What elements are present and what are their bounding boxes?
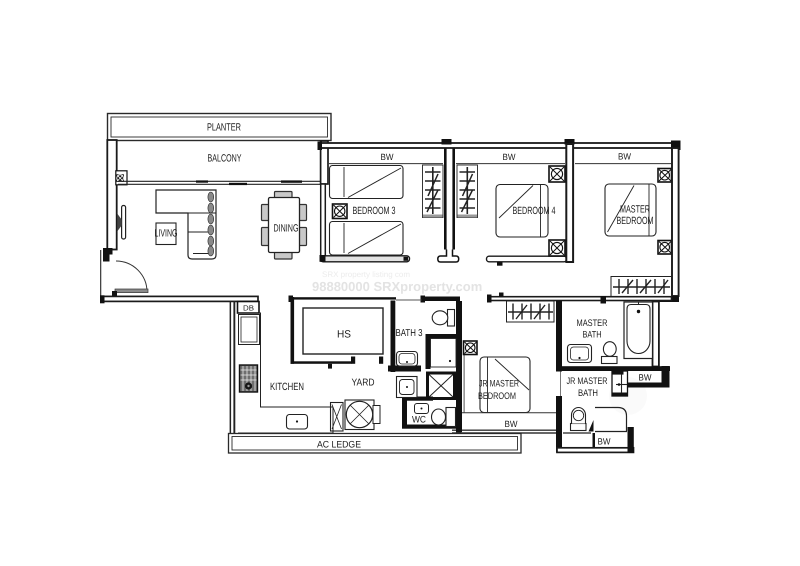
svg-text:BALCONY: BALCONY xyxy=(208,153,242,165)
svg-text:AC LEDGE: AC LEDGE xyxy=(317,440,361,451)
svg-text:WC: WC xyxy=(412,414,426,425)
svg-text:JR MASTER: JR MASTER xyxy=(479,379,519,390)
svg-text:JR MASTER: JR MASTER xyxy=(567,376,608,387)
svg-text:BATH: BATH xyxy=(583,330,602,341)
svg-text:98880000 SRXproperty.com: 98880000 SRXproperty.com xyxy=(312,279,482,294)
svg-text:BEDROOM 4: BEDROOM 4 xyxy=(513,205,556,217)
svg-text:BEDROOM: BEDROOM xyxy=(478,391,516,402)
svg-text:BW: BW xyxy=(618,152,631,162)
svg-text:BW: BW xyxy=(381,152,394,162)
svg-text:BATH 3: BATH 3 xyxy=(396,328,423,339)
svg-text:BW: BW xyxy=(639,373,652,383)
svg-text:DB: DB xyxy=(243,304,254,313)
svg-text:BATH: BATH xyxy=(578,388,598,399)
svg-text:MASTER: MASTER xyxy=(620,204,650,216)
svg-text:YARD: YARD xyxy=(352,378,375,389)
svg-text:BEDROOM 3: BEDROOM 3 xyxy=(353,205,396,217)
svg-text:DINING: DINING xyxy=(274,223,299,235)
svg-text:HS: HS xyxy=(337,329,351,341)
svg-text:BW: BW xyxy=(598,437,611,447)
svg-text:BEDROOM: BEDROOM xyxy=(617,215,654,227)
svg-text:SRX property listing com: SRX property listing com xyxy=(322,270,410,279)
svg-text:MASTER: MASTER xyxy=(577,318,608,329)
svg-text:PLANTER: PLANTER xyxy=(207,122,241,134)
svg-text:BW: BW xyxy=(503,152,516,162)
svg-text:LIVING: LIVING xyxy=(155,228,178,240)
svg-text:BW: BW xyxy=(505,419,518,429)
svg-text:KITCHEN: KITCHEN xyxy=(270,381,304,393)
